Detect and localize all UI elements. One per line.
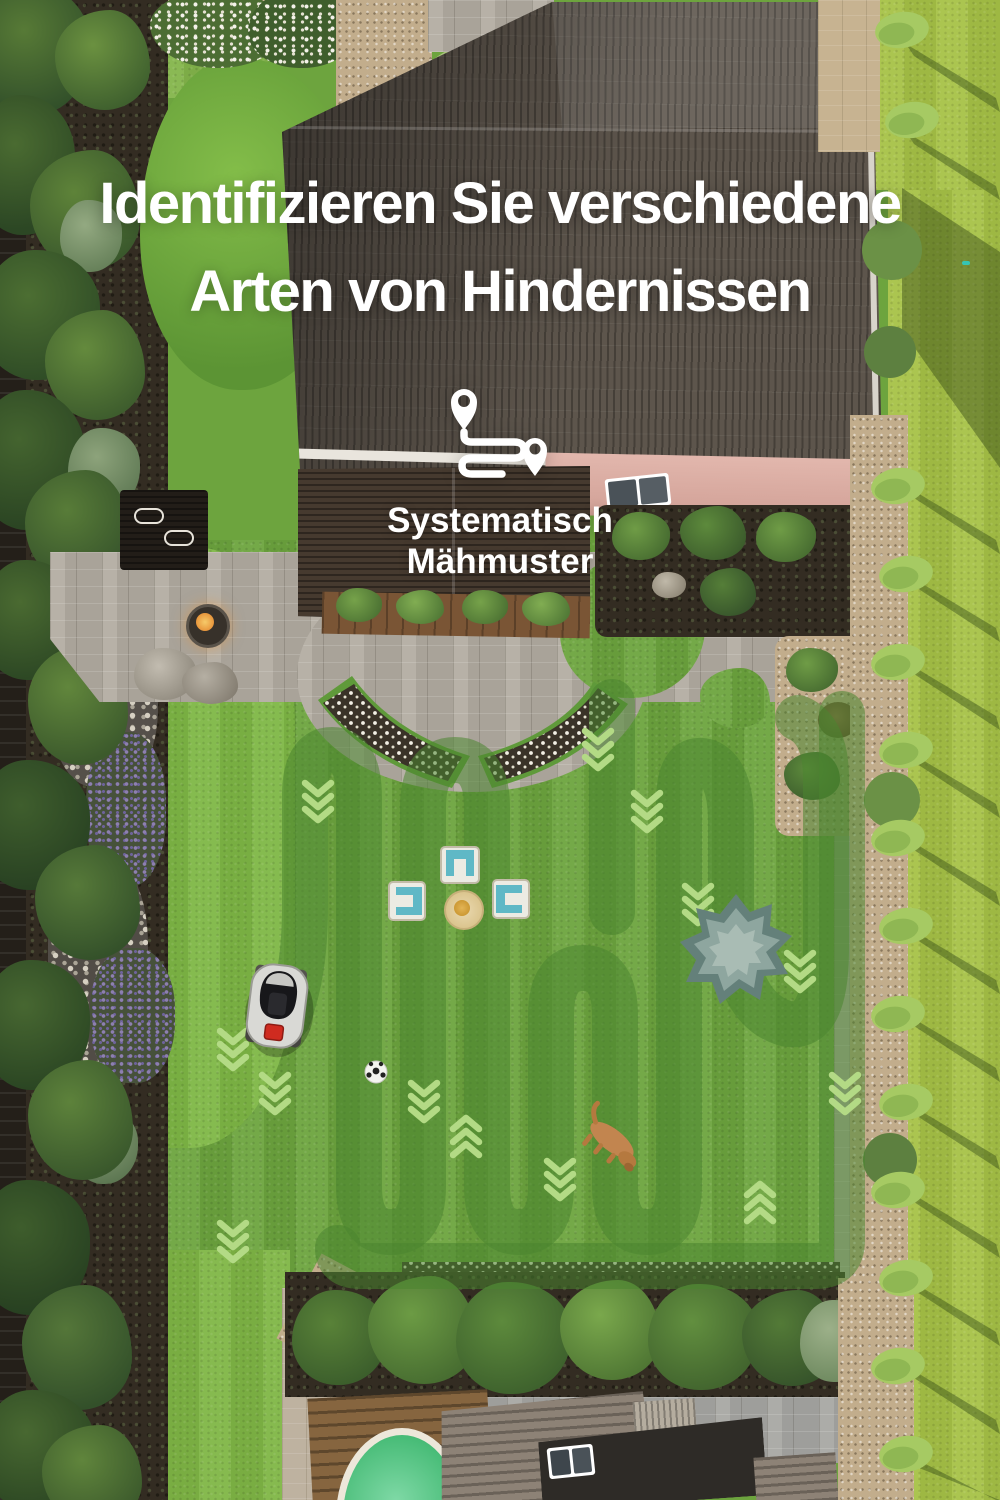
headline-line-1: Identifizieren Sie verschiedene — [0, 160, 1000, 248]
badge-title-line-2: Mähmuster — [0, 541, 1000, 582]
headline-line-2: Arten von Hindernissen — [0, 248, 1000, 336]
garden-chair — [440, 846, 480, 884]
location-pin-start-icon — [451, 389, 477, 430]
location-pin-end-icon — [523, 438, 547, 476]
table-tray — [454, 900, 470, 916]
aerial-garden-scene: Identifizieren Sie verschiedene Arten vo… — [0, 0, 1000, 1500]
mowing-route-icon — [438, 384, 562, 496]
feathery-shrub — [864, 772, 920, 828]
garden-chair — [388, 880, 426, 922]
garden-chair — [492, 878, 530, 920]
soccer-ball — [365, 1061, 387, 1083]
route-line — [462, 432, 524, 474]
badge-title-line-1: Systematisch — [0, 500, 1000, 541]
